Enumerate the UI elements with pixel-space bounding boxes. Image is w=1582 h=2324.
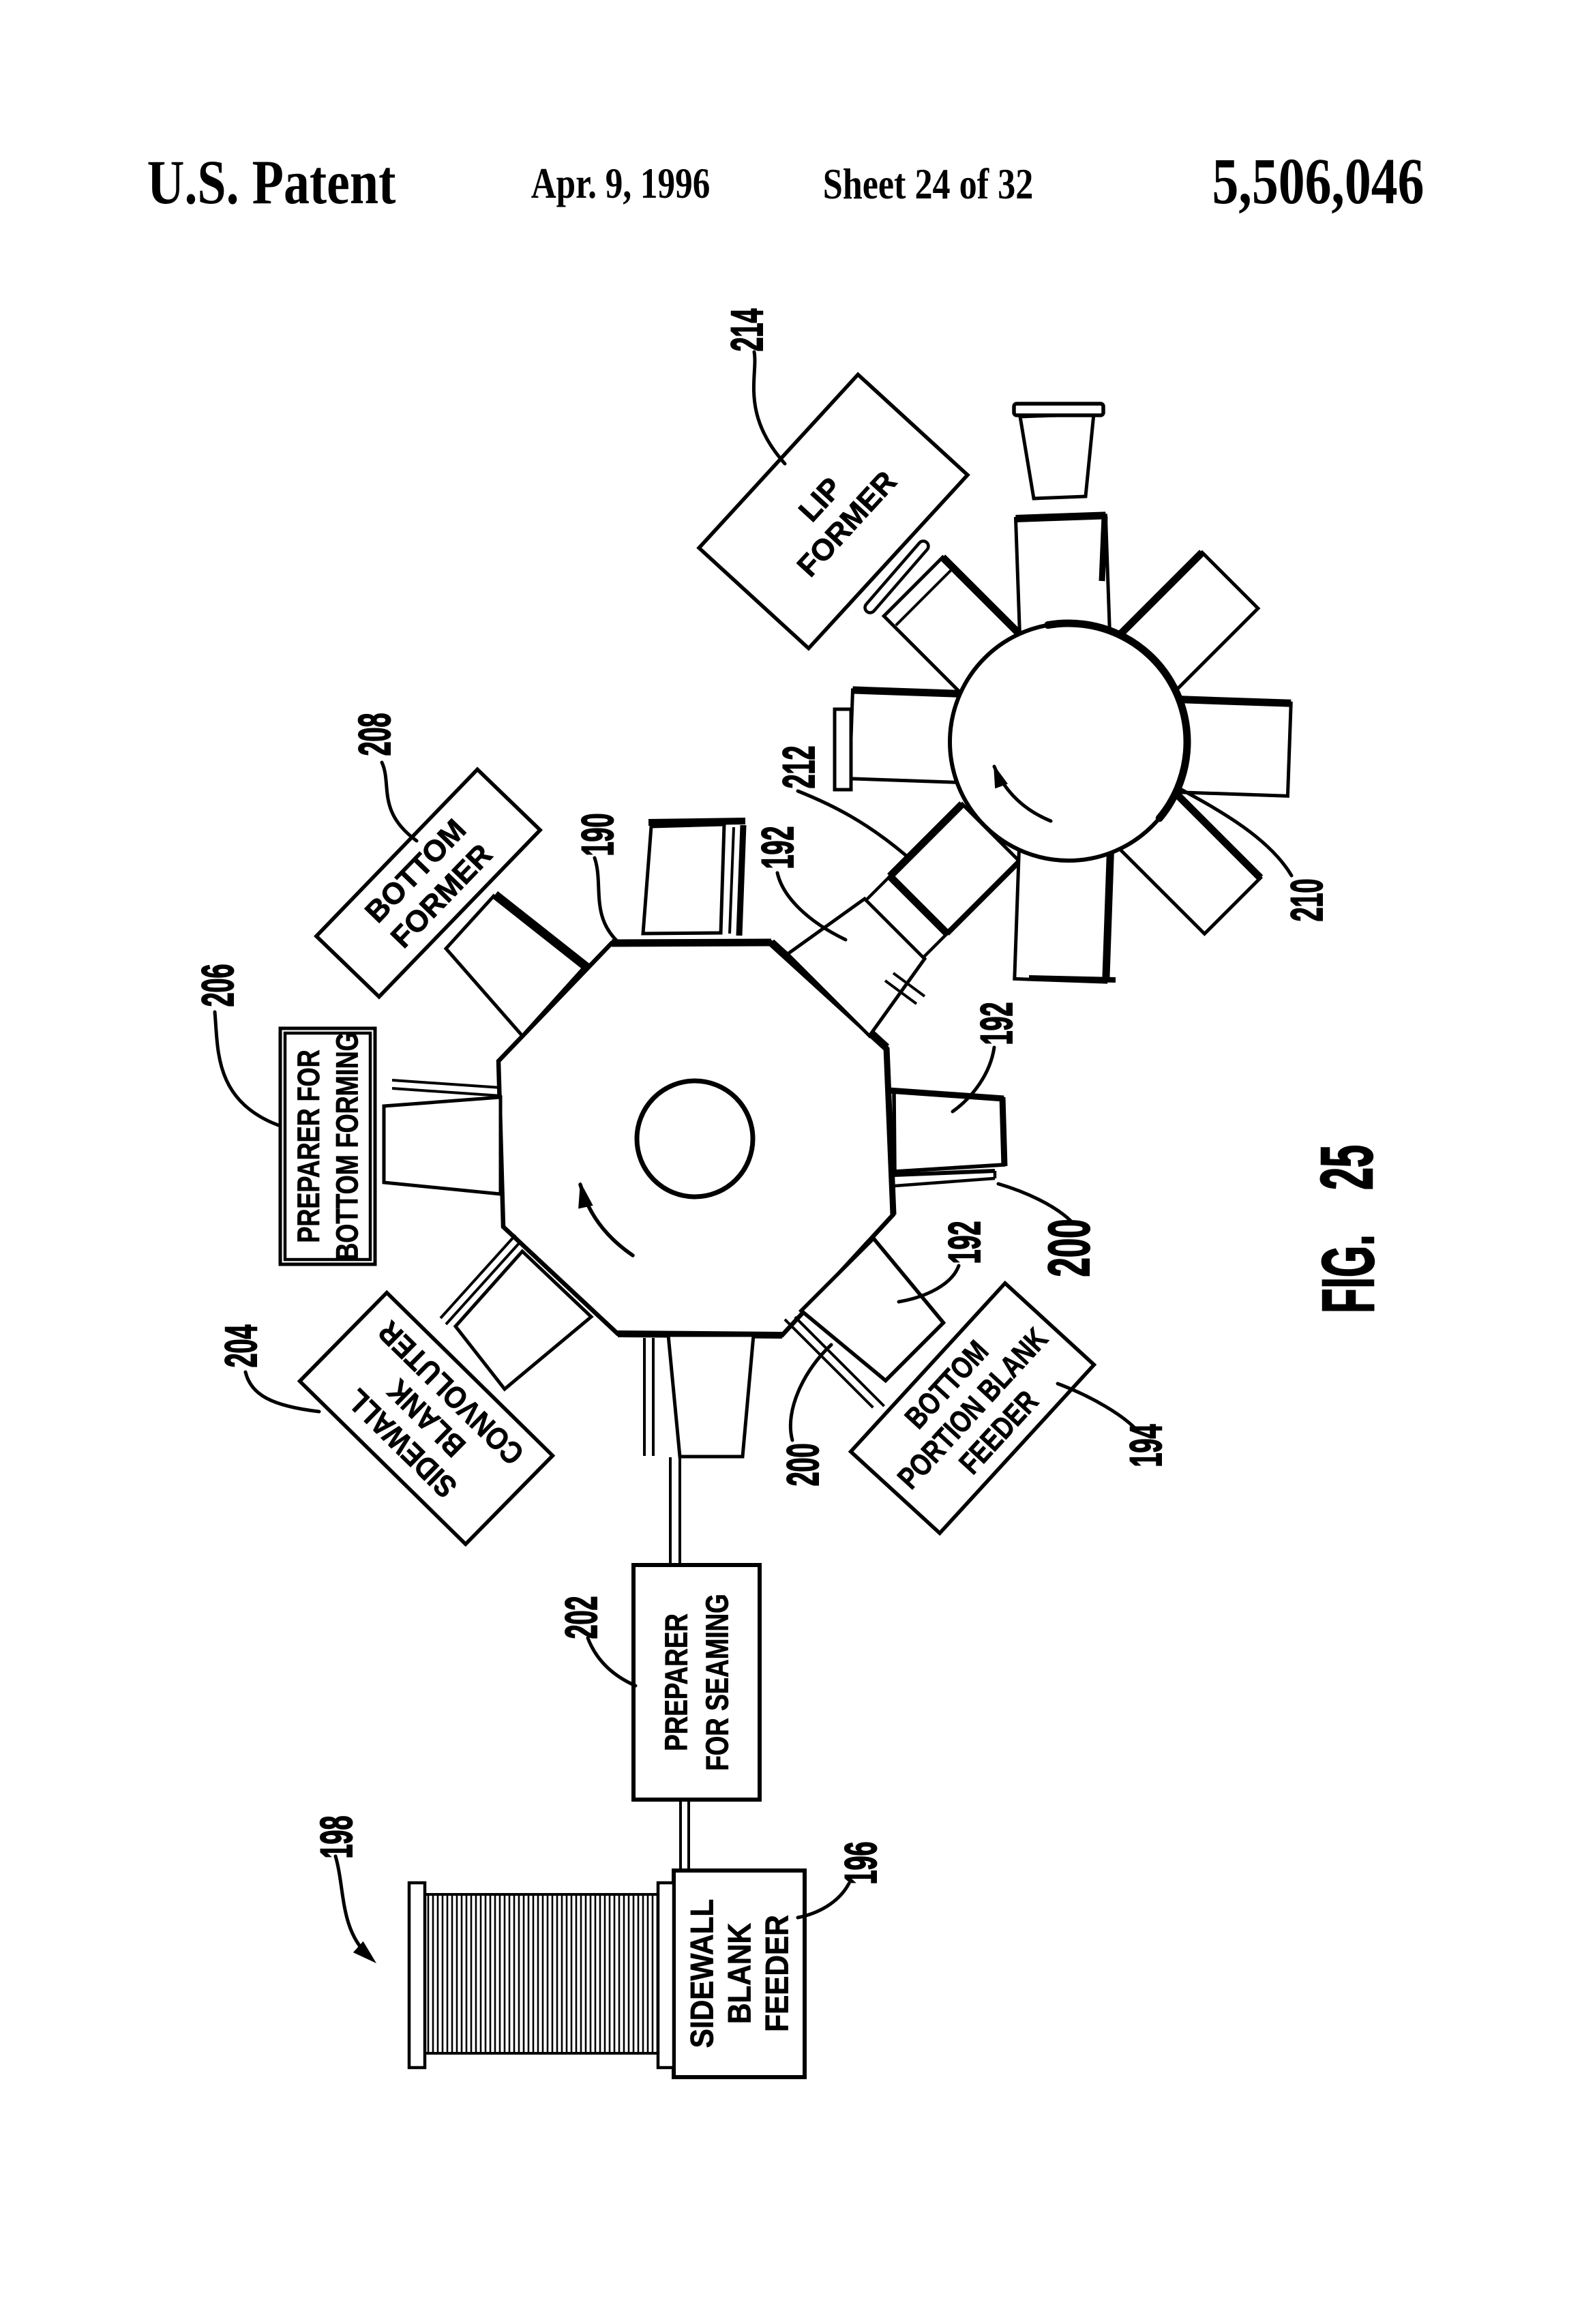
- svg-text:Apr. 9, 1996: Apr. 9, 1996: [531, 159, 711, 208]
- svg-text:200: 200: [778, 1444, 829, 1487]
- svg-text:FOR SEAMING: FOR SEAMING: [700, 1594, 735, 1771]
- svg-text:PREPARER: PREPARER: [659, 1613, 694, 1751]
- svg-text:196: 196: [836, 1842, 886, 1885]
- svg-text:194: 194: [1121, 1425, 1171, 1468]
- svg-text:206: 206: [193, 964, 243, 1007]
- svg-text:202: 202: [556, 1596, 607, 1639]
- svg-text:190: 190: [573, 814, 623, 856]
- svg-text:204: 204: [216, 1325, 267, 1368]
- svg-text:BLANK: BLANK: [722, 1923, 758, 2024]
- svg-text:5,506,046: 5,506,046: [1212, 145, 1424, 218]
- svg-text:Sheet 24 of 32: Sheet 24 of 32: [823, 160, 1034, 208]
- svg-text:U.S. Patent: U.S. Patent: [147, 148, 396, 217]
- svg-text:208: 208: [350, 713, 400, 756]
- svg-text:FIG.: FIG.: [1307, 1234, 1389, 1313]
- svg-text:PREPARER FOR: PREPARER FOR: [291, 1049, 326, 1242]
- svg-text:210: 210: [1282, 879, 1332, 922]
- svg-text:192: 192: [940, 1221, 990, 1264]
- svg-text:192: 192: [753, 826, 803, 869]
- svg-text:212: 212: [774, 746, 824, 789]
- svg-text:SIDEWALL: SIDEWALL: [685, 1899, 721, 2049]
- svg-text:192: 192: [972, 1002, 1022, 1045]
- svg-text:200: 200: [1037, 1219, 1102, 1277]
- svg-text:214: 214: [722, 309, 773, 352]
- svg-text:BOTTOM FORMING: BOTTOM FORMING: [330, 1032, 365, 1260]
- svg-text:FEEDER: FEEDER: [760, 1915, 795, 2032]
- svg-text:25: 25: [1306, 1145, 1388, 1190]
- svg-text:198: 198: [312, 1816, 362, 1859]
